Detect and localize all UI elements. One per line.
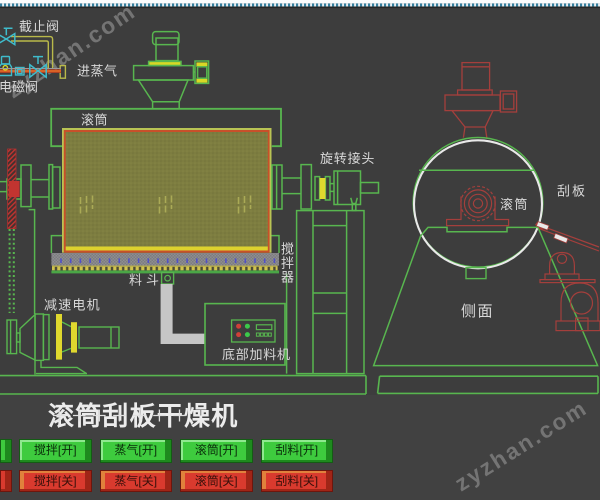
svg-text:电磁阀: 电磁阀	[0, 80, 38, 95]
svg-text:旋转接头: 旋转接头	[320, 151, 375, 166]
svg-text:滚筒: 滚筒	[500, 197, 529, 212]
svg-text:刮板: 刮板	[557, 184, 587, 199]
svg-text:器: 器	[281, 270, 294, 285]
svg-text:料斗: 料斗	[129, 273, 163, 288]
svg-text:进蒸气: 进蒸气	[77, 64, 118, 79]
svg-text:侧面: 侧面	[461, 303, 494, 320]
svg-text:底部加料机: 底部加料机	[222, 347, 291, 362]
svg-text:截止阀: 截止阀	[19, 19, 60, 34]
svg-text:滚筒: 滚筒	[81, 113, 108, 128]
svg-text:搅: 搅	[281, 242, 294, 257]
svg-text:拌: 拌	[281, 256, 294, 271]
svg-text:减速电机: 减速电机	[44, 298, 101, 313]
